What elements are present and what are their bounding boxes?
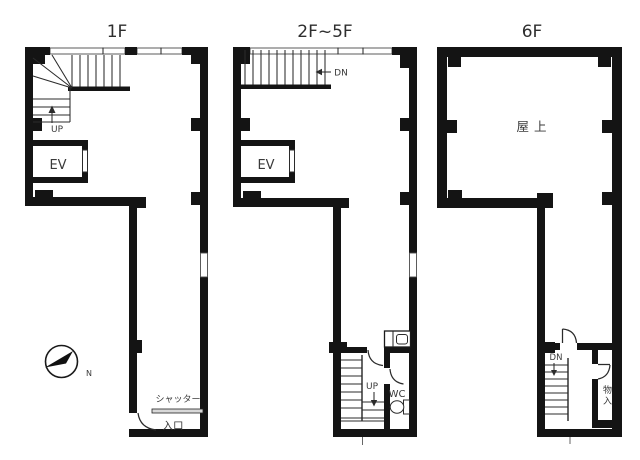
staircase-6f: DN [545, 353, 568, 421]
up-arrow-icon-2f [371, 392, 377, 407]
entrance-1f: シャッター 入口 [138, 394, 203, 432]
storage-door-arc [598, 365, 610, 379]
storage-room: 物 入 [598, 365, 612, 408]
dn-label-2f: DN [334, 69, 348, 79]
north-label: N [86, 369, 92, 378]
storage-label-char1: 物 [603, 384, 612, 396]
top-windows-2f [250, 48, 392, 55]
elevator-room-2f: EV [241, 140, 295, 183]
entrance-label: 入口 [163, 420, 184, 432]
floor-plan-2f-5f: 2F~5F [233, 22, 417, 445]
top-windows-1f [50, 48, 182, 55]
storage-label-char2: 入 [603, 396, 612, 407]
compass-icon: N [45, 346, 92, 379]
wc-door-arc [390, 369, 404, 384]
elevator-label-1f: EV [49, 158, 66, 173]
dn-label-6f: DN [550, 353, 563, 363]
shutter-label: シャッター [155, 394, 200, 405]
hall-door-6f [563, 329, 577, 343]
elevator-door-2f [290, 150, 295, 172]
shutter-bar [152, 409, 203, 413]
floor-plan-sheet: 1F [0, 0, 640, 460]
wc-room: WC [389, 369, 410, 414]
up-label-2f: UP [366, 382, 379, 392]
floor-title-6f: 6F [522, 22, 543, 42]
floor-title-1f: 1F [107, 22, 128, 42]
sink-icon [385, 331, 411, 347]
stair-door-arc-2f [368, 350, 383, 366]
up-arrow-icon-1f [49, 106, 56, 124]
up-label-1f: UP [51, 125, 64, 135]
floor-plan-6f: 6F 屋上 [437, 22, 622, 444]
dn-arrow-icon-2f [316, 69, 332, 75]
rooftop-label: 屋上 [516, 119, 551, 134]
toilet-icon [390, 400, 409, 414]
elevator-door-1f [83, 150, 88, 172]
walls-2f [233, 47, 417, 437]
staircase-1f: UP [33, 55, 130, 135]
side-window-1f [201, 253, 208, 277]
elevator-room-1f: EV [33, 140, 88, 183]
walls-6f [437, 47, 622, 437]
walls-1f [25, 47, 208, 437]
floor-title-2f-5f: 2F~5F [297, 22, 352, 42]
wc-label: WC [389, 389, 406, 400]
floor-plan-drawing: 1F [0, 0, 640, 460]
entrance-door-arc [138, 413, 156, 430]
staircase-2f-upper: DN [238, 50, 348, 89]
elevator-label-2f: EV [257, 158, 274, 173]
side-window-2f [410, 253, 417, 277]
